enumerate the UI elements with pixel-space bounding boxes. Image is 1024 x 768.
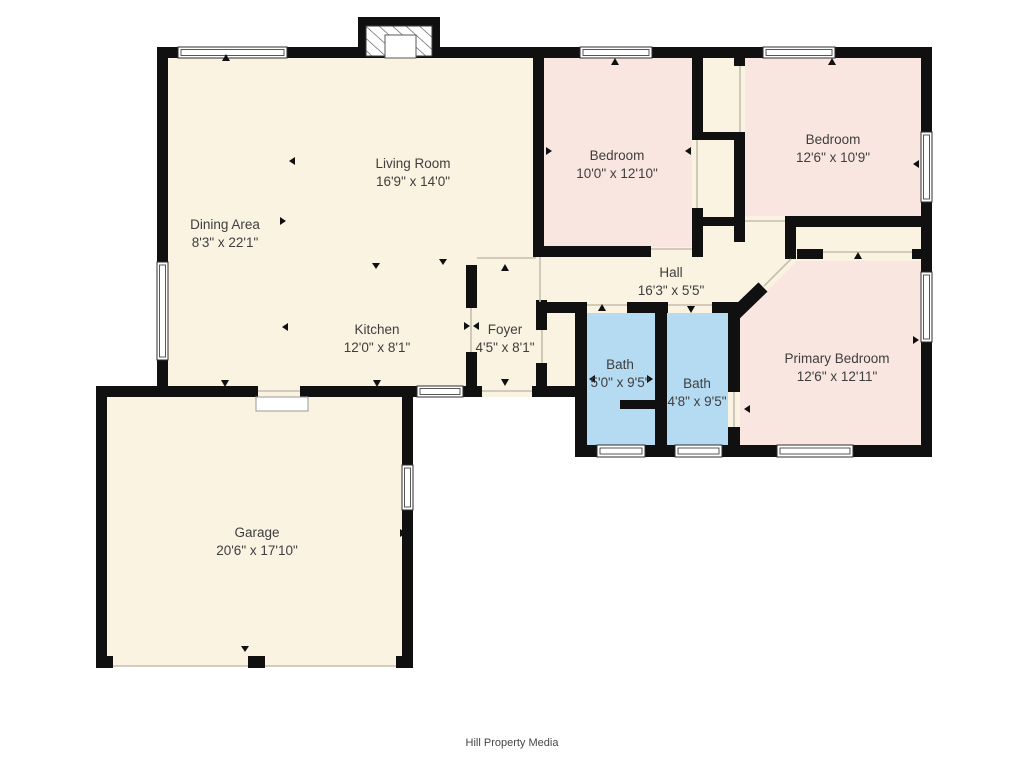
label-dining-area: Dining Area <box>190 217 260 232</box>
label-bedroom-2: Bedroom <box>806 132 861 147</box>
label-kitchen-dims: 12'0" x 8'1" <box>344 340 411 355</box>
label-bedroom-2-dims: 12'6" x 10'9" <box>796 150 870 165</box>
label-bath-2-dims: 4'8" x 9'5" <box>667 394 726 409</box>
room-garage <box>96 392 407 656</box>
chimney <box>358 17 440 58</box>
window <box>921 272 932 342</box>
window <box>763 47 835 58</box>
window <box>597 445 645 457</box>
garage-door-opening-left <box>113 656 248 666</box>
label-garage-dims: 20'6" x 17'10" <box>216 543 298 558</box>
window <box>580 47 652 58</box>
window <box>921 132 932 202</box>
window <box>417 386 463 397</box>
label-dining-area-dims: 8'3" x 22'1" <box>192 235 259 250</box>
window <box>157 262 168 360</box>
label-living-room-dims: 16'9" x 14'0" <box>376 174 450 189</box>
chimney-flue <box>385 35 416 58</box>
floor-plan-drawing: Living Room 16'9" x 14'0" Dining Area 8'… <box>0 0 1024 768</box>
label-primary-bedroom-dims: 12'6" x 12'11" <box>797 369 878 384</box>
window <box>777 445 853 457</box>
garage-door-opening-right <box>265 656 396 666</box>
window <box>178 47 287 58</box>
label-primary-bedroom: Primary Bedroom <box>784 351 889 366</box>
label-hall: Hall <box>659 265 682 280</box>
label-foyer: Foyer <box>488 322 523 337</box>
label-foyer-dims: 4'5" x 8'1" <box>475 340 534 355</box>
garage-entry-step <box>256 397 308 411</box>
label-kitchen: Kitchen <box>354 322 399 337</box>
label-hall-dims: 16'3" x 5'5" <box>638 283 705 298</box>
floor-plan-page: Living Room 16'9" x 14'0" Dining Area 8'… <box>0 0 1024 768</box>
label-living-room: Living Room <box>375 156 450 171</box>
label-garage: Garage <box>234 525 279 540</box>
label-bath-1: Bath <box>606 357 634 372</box>
window <box>402 465 413 510</box>
label-bath-1-dims: 5'0" x 9'5" <box>590 375 649 390</box>
label-bedroom-1-dims: 10'0" x 12'10" <box>576 166 658 181</box>
label-bath-2: Bath <box>683 376 711 391</box>
label-bedroom-1: Bedroom <box>590 148 645 163</box>
window <box>675 445 722 457</box>
credit-text: Hill Property Media <box>466 737 560 749</box>
